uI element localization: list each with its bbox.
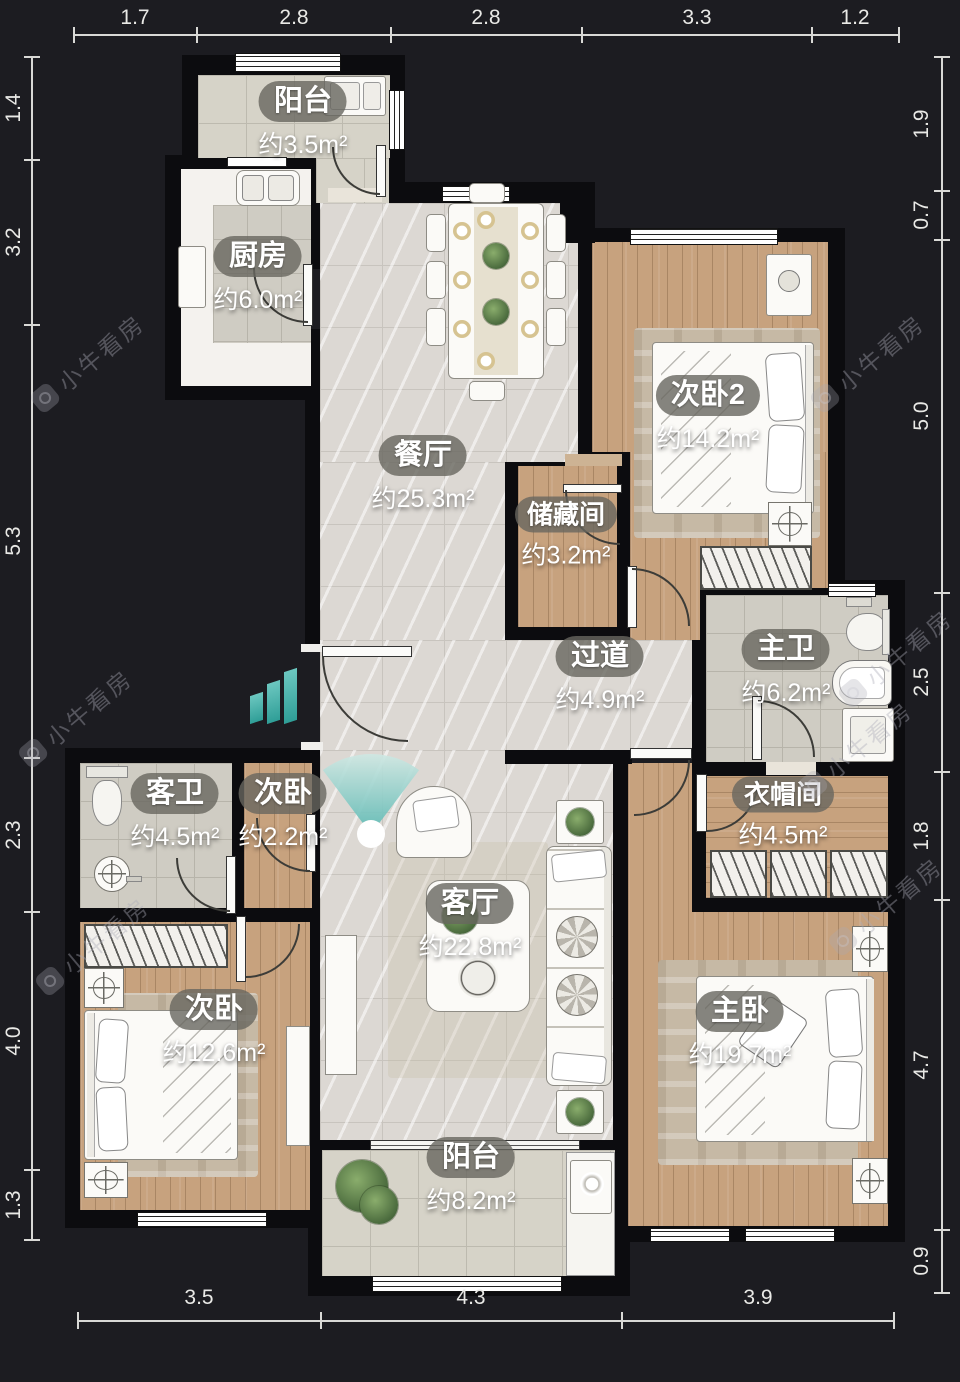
wall <box>505 750 632 764</box>
dim-label: 5.0 <box>910 401 934 430</box>
bed <box>652 342 814 514</box>
compass-mark <box>267 680 280 724</box>
plant-icon <box>360 1186 398 1224</box>
dim-tick <box>934 899 950 901</box>
dim-label: 2.3 <box>2 820 26 849</box>
wardrobe <box>84 924 228 968</box>
pillow <box>765 424 805 494</box>
dim-label: 5.3 <box>2 526 26 555</box>
plant-icon <box>483 243 509 269</box>
sofa-pillow <box>551 849 608 882</box>
dim-tick <box>893 1312 895 1329</box>
door-leaf <box>630 748 692 759</box>
vanity-basin <box>850 716 886 754</box>
dim-tick <box>898 27 900 43</box>
pillow <box>95 1018 129 1084</box>
sofa-pillow <box>551 1052 607 1085</box>
dim-tick <box>934 56 950 58</box>
plant-icon <box>566 1098 594 1126</box>
bed <box>84 1010 238 1160</box>
door-threshold <box>766 762 816 775</box>
dim-label: 2.5 <box>910 667 934 696</box>
blanket-fold <box>661 351 731 507</box>
pillow <box>825 1060 863 1130</box>
watermark-text: 小牛看房 <box>49 305 151 398</box>
toilet-tank <box>882 609 890 655</box>
place-setting <box>453 222 471 240</box>
door-leaf <box>696 774 707 832</box>
dim-tick <box>24 911 40 913</box>
dim-tick <box>24 56 40 58</box>
bench <box>286 1026 310 1146</box>
shower-fixture-icon <box>846 597 872 607</box>
dim-label: 4.3 <box>456 1286 485 1310</box>
plant-icon <box>566 808 594 836</box>
pillow <box>825 988 864 1058</box>
dim-tick <box>24 757 40 759</box>
pillow <box>765 352 806 422</box>
dim-tick <box>934 592 950 594</box>
wardrobe <box>700 546 812 590</box>
toilet-icon <box>92 780 122 826</box>
dim-label: 1.9 <box>910 109 934 138</box>
dim-tick <box>24 159 40 161</box>
dim-label: 4.7 <box>910 1050 934 1079</box>
dim-label: 3.9 <box>743 1286 772 1310</box>
window <box>650 1228 730 1242</box>
dim-label: 1.7 <box>120 6 149 30</box>
compass-mark <box>250 692 263 724</box>
wall <box>888 898 905 1242</box>
dim-label: 0.7 <box>910 200 934 229</box>
dim-tick <box>24 324 40 326</box>
dim-tick <box>77 1312 79 1329</box>
wall <box>613 750 628 1140</box>
window <box>227 157 287 167</box>
headboard <box>87 1013 95 1157</box>
window <box>828 583 876 597</box>
place-setting <box>521 320 539 338</box>
table-runner <box>474 207 518 375</box>
laundry-basin <box>363 82 381 110</box>
lamp-icon <box>778 270 800 292</box>
wall <box>828 228 845 602</box>
entry-direction-fan <box>296 752 446 852</box>
wardrobe <box>770 850 827 898</box>
bathtub-basin <box>839 667 885 699</box>
dim-line-left <box>31 57 33 1241</box>
dim-tick <box>934 239 950 241</box>
dim-tick <box>581 27 583 43</box>
light-fixture-icon <box>768 502 812 546</box>
shower-drain-icon <box>94 856 130 892</box>
blanket-fold <box>163 1019 231 1153</box>
headboard <box>805 345 813 511</box>
plant-icon <box>483 299 509 325</box>
dining-chair <box>469 183 505 203</box>
dim-tick <box>934 1292 950 1294</box>
dim-tick <box>934 1229 950 1231</box>
pillow <box>95 1086 128 1151</box>
door-threshold <box>565 454 622 466</box>
door-leaf <box>236 916 246 982</box>
watermark-logo-icon <box>16 736 50 770</box>
dim-tick <box>390 27 392 43</box>
watermark-logo-icon <box>33 964 67 998</box>
shower-handle <box>126 876 142 882</box>
entry-jamb <box>301 644 323 652</box>
floor-dining-lower <box>320 462 505 640</box>
window <box>235 53 341 72</box>
place-setting <box>477 211 495 229</box>
entry-jamb <box>301 742 323 750</box>
dim-line-bottom <box>78 1320 895 1322</box>
floor-plan: 阳台 约3.5m² 厨房 约6.0m² 餐厅 约25.3m² 次卧2 约14.2… <box>0 0 960 1382</box>
dim-label: 3.2 <box>2 227 26 256</box>
wall <box>165 386 325 400</box>
dim-label: 1.8 <box>910 821 934 850</box>
place-setting <box>453 271 471 289</box>
dim-label: 2.8 <box>471 6 500 30</box>
dim-tick <box>811 27 813 43</box>
place-setting <box>477 352 495 370</box>
place-setting <box>521 222 539 240</box>
dim-tick <box>934 190 950 192</box>
dim-label: 2.8 <box>279 6 308 30</box>
watermark-logo-icon <box>28 381 62 415</box>
dim-tick <box>621 1312 623 1329</box>
dim-line-right <box>941 57 943 1294</box>
dim-label: 3.5 <box>184 1286 213 1310</box>
blanket-fold <box>705 985 765 1135</box>
balcony-slider-door <box>370 1140 580 1150</box>
dim-label: 0.9 <box>910 1246 934 1275</box>
window <box>389 90 405 150</box>
dining-chair <box>546 261 566 299</box>
watermark-text: 小牛看房 <box>37 660 139 753</box>
place-setting <box>453 320 471 338</box>
dim-tick <box>24 1169 40 1171</box>
window <box>137 1212 267 1227</box>
dining-chair <box>426 261 446 299</box>
toilet-icon <box>846 613 886 651</box>
tv-stand <box>325 935 357 1075</box>
dim-label: 3.3 <box>682 6 711 30</box>
washer-drum <box>580 1172 604 1196</box>
dim-tick <box>196 27 198 43</box>
dining-chair <box>426 214 446 252</box>
light-fixture-icon <box>84 968 124 1008</box>
dining-chair <box>469 381 505 401</box>
compass-mark <box>284 668 297 724</box>
dining-chair <box>546 308 566 346</box>
stove <box>178 246 206 308</box>
dim-label: 1.2 <box>840 6 869 30</box>
window <box>630 228 778 245</box>
window <box>745 1228 835 1242</box>
light-fixture-icon <box>852 926 888 972</box>
sink-basin <box>268 175 294 201</box>
place-setting <box>521 271 539 289</box>
dim-tick <box>24 1239 40 1241</box>
light-fixture-icon <box>84 1162 128 1198</box>
dining-chair <box>426 308 446 346</box>
dim-tick <box>320 1312 322 1329</box>
tray-icon <box>458 958 498 998</box>
plant-icon <box>442 898 478 934</box>
bed <box>696 976 874 1142</box>
watermark: 小牛看房 <box>25 305 151 418</box>
dim-label: 1.4 <box>2 93 26 122</box>
laundry-basin <box>330 82 360 110</box>
dim-tick <box>73 27 75 43</box>
headboard <box>866 979 874 1141</box>
light-fixture-icon <box>852 1158 888 1204</box>
dim-label: 4.0 <box>2 1026 26 1055</box>
wardrobe <box>710 850 767 898</box>
dining-chair <box>546 214 566 252</box>
wardrobe <box>830 850 888 898</box>
dim-tick <box>934 771 950 773</box>
round-cushion <box>556 916 598 958</box>
round-cushion <box>556 974 598 1016</box>
sink-basin <box>242 175 264 201</box>
dim-label: 1.3 <box>2 1190 26 1219</box>
toilet-tank <box>86 766 128 778</box>
